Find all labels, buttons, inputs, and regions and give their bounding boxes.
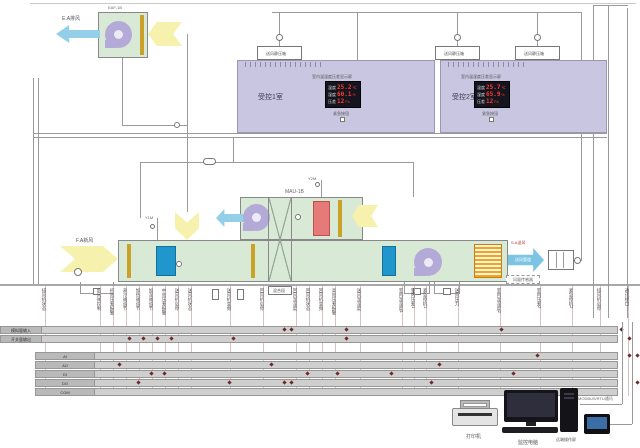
diffuser-hatch-icon [458,62,459,67]
diffuser-hatch-icon [478,62,479,67]
signal-label: 通讯接口 [625,288,630,324]
io-bus-bar [35,352,618,360]
signal-label: 送风压力 [455,288,460,324]
bus-connection-dot [627,336,631,340]
diffuser-hatch-icon [315,62,316,67]
monitoring-pc-label: 监控电脑 [518,440,538,446]
diffuser-hatch-icon [503,62,504,67]
signal-label: 回风机启停 [260,288,265,324]
signal-label: 高效压差报警 [332,288,337,324]
modbus-label: MODBUS/RTU通讯 [578,396,613,401]
io-bus-bar-label: DO [35,379,95,387]
signal-label: 室内压差2 [537,288,542,324]
io-bus-bar-label: AO [35,361,95,369]
signal-label: 室内压差1 [411,288,416,324]
diffuser-hatch-icon [518,62,519,67]
signal-label: 送风机启停 [175,288,180,324]
signal-label: 送风温湿度 [357,288,362,324]
bus-connection-dot [635,353,639,357]
diffuser-hatch-icon [270,62,271,67]
diffuser-hatch-icon [275,62,276,67]
diffuser-hatch-icon [255,62,256,67]
hmi-panel-icon [584,414,610,434]
diffuser-hatch-icon [523,62,524,67]
bus-connection-dot [635,380,639,384]
diffuser-hatch-icon [453,62,454,67]
diffuser-hatch-icon [245,62,246,67]
diffuser-hatch-icon [280,62,281,67]
diffuser-hatch-icon [260,62,261,67]
diffuser-hatch-icon [290,62,291,67]
diffuser-hatch-icon [320,62,321,67]
hmi-panel-label: 远端操作屏 [556,437,576,442]
io-bus-bar-label: DI [35,370,95,378]
diffuser-hatch-icon [448,62,449,67]
io-bus-bar [35,361,618,369]
signal-label: 中效压差报警 [162,288,167,324]
signal-label: 加湿阀调节 [149,288,154,324]
diffuser-hatch-icon [488,62,489,67]
signal-label: 排风机状态 [42,288,47,324]
signal-label: 室内温湿度1 [399,288,404,324]
generated-layer: 排风机状态新风阀控制初效压差报警表冷阀调节加热阀调节加湿阀调节中效压差报警送风机… [0,0,640,448]
signal-label: 紧急停机1 [423,288,428,324]
signal-label: 新风阀控制 [97,288,102,324]
signal-label: 回风机变频 [319,288,324,324]
diffuser-hatch-icon [250,62,251,67]
io-bus-bar-label: COM [35,388,95,396]
diffuser-hatch-icon [300,62,301,67]
signal-label: 初效压差报警 [110,288,115,324]
monitoring-pc-icon [504,388,580,434]
io-bus-bar [0,326,618,334]
diffuser-hatch-icon [295,62,296,67]
signal-label: 室内温湿度2 [497,288,502,324]
signal-label: 紧急停机2 [569,288,574,324]
signal-label: 回风机状态 [306,288,311,324]
pc-bus-line-h [580,404,622,405]
io-bus-bar [35,379,618,387]
signal-label: 送风机状态 [188,288,193,324]
printer-icon [452,400,498,432]
pc-bus-line-v [622,322,623,404]
hmi-bus-line-h [609,424,632,425]
diffuser-hatch-icon [473,62,474,67]
hmi-bus-line-v [632,322,633,424]
bus-connection-dot [627,353,631,357]
io-bus-bar [35,370,618,378]
diffuser-hatch-icon [310,62,311,67]
diffuser-hatch-icon [493,62,494,67]
signal-label: 回风温湿度 [293,288,298,324]
hvac-control-diagram: EAF-1B E.A排风 送风静压箱 送风静压箱 送风静压箱 受控1室 受控2室… [0,0,640,448]
diffuser-hatch-icon [305,62,306,67]
diffuser-hatch-icon [468,62,469,67]
signal-label: 加热阀调节 [136,288,141,324]
diffuser-hatch-icon [513,62,514,67]
io-bus-bar-label: 开关量输出 [0,335,42,343]
signal-label: 送风机变频 [227,288,232,324]
diffuser-hatch-icon [463,62,464,67]
io-bus-bar-label: AI [35,352,95,360]
signal-label: 排风机启停 [597,288,602,324]
io-bus-bar [0,335,618,343]
diffuser-hatch-icon [508,62,509,67]
diffuser-hatch-icon [498,62,499,67]
diffuser-hatch-icon [265,62,266,67]
diffuser-hatch-icon [483,62,484,67]
printer-label: 打印机 [466,434,481,440]
signal-label: 表冷阀调节 [123,288,128,324]
diffuser-hatch-icon [285,62,286,67]
io-bus-bar-label: 模拟量输入 [0,326,42,334]
